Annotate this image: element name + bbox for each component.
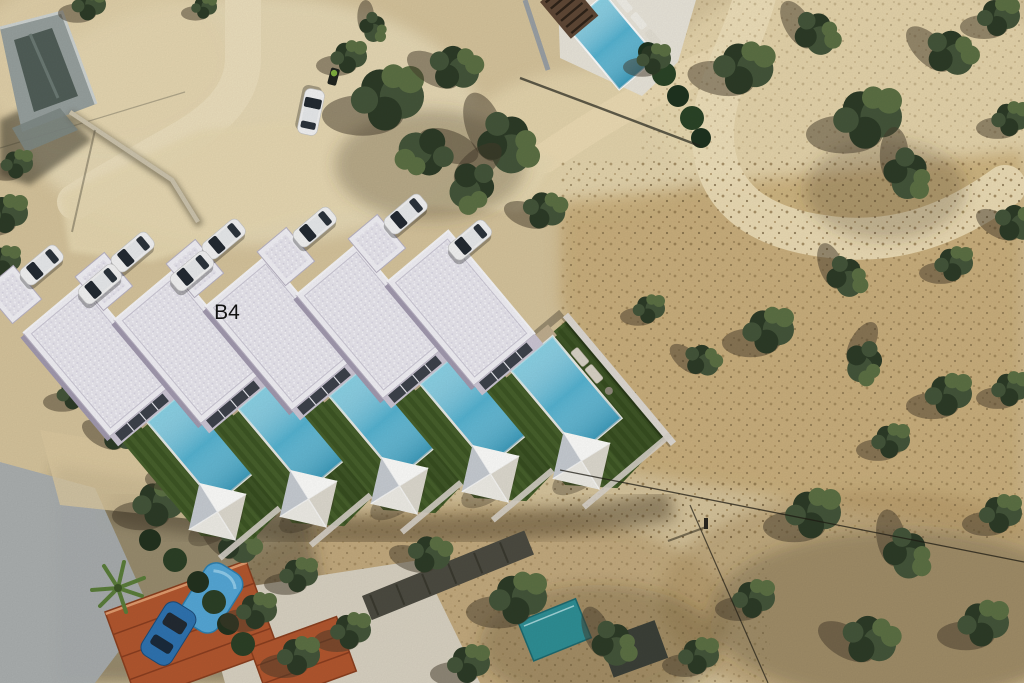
unit-label: B4 (214, 301, 240, 324)
photo-grain (0, 0, 1024, 683)
aerial-photo: B4 (0, 0, 1024, 683)
aerial-photo-stage: B4 (0, 0, 1024, 683)
